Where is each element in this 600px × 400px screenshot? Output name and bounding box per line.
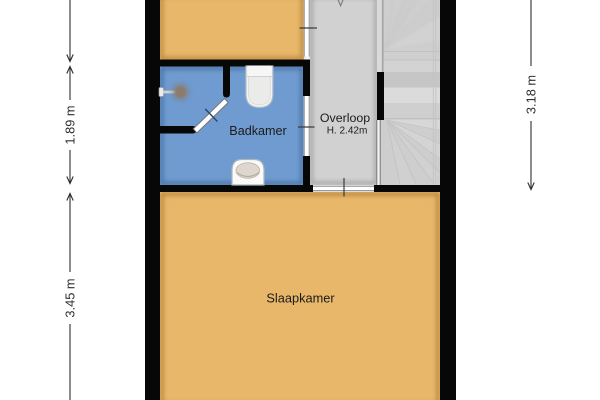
svg-text:Slaapkamer: Slaapkamer xyxy=(266,291,335,306)
svg-text:Overloop: Overloop xyxy=(320,111,370,125)
svg-text:1.89 m: 1.89 m xyxy=(63,105,78,144)
svg-text:H. 2.42m: H. 2.42m xyxy=(327,126,368,137)
svg-text:3.18 m: 3.18 m xyxy=(524,75,539,114)
svg-text:3.45 m: 3.45 m xyxy=(63,278,78,317)
svg-text:Badkamer: Badkamer xyxy=(229,124,286,138)
